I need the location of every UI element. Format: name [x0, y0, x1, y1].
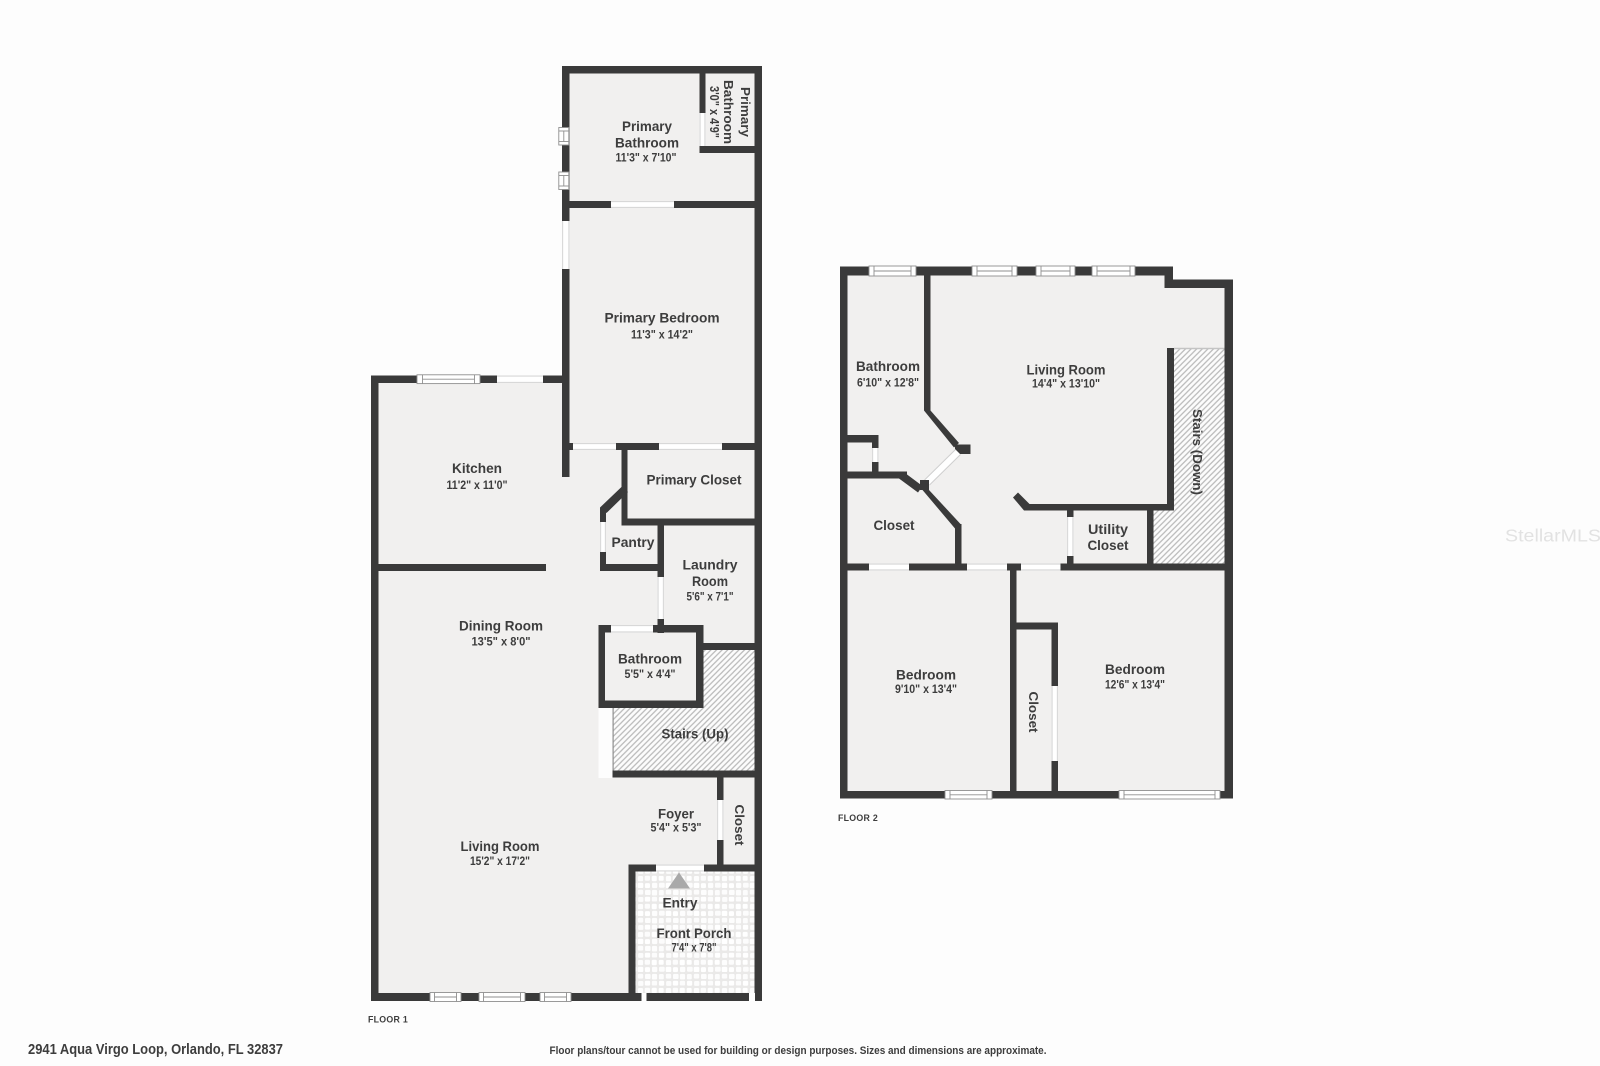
svg-text:Pantry: Pantry — [612, 534, 655, 550]
svg-text:StellarMLS: StellarMLS — [1505, 526, 1600, 546]
svg-text:FLOOR 1: FLOOR 1 — [368, 1015, 408, 1026]
svg-text:Bedroom: Bedroom — [1105, 661, 1165, 677]
svg-text:Front Porch: Front Porch — [657, 925, 732, 941]
svg-text:Closet: Closet — [1026, 692, 1040, 734]
svg-text:Bedroom: Bedroom — [896, 667, 956, 683]
svg-text:Entry: Entry — [663, 895, 698, 911]
svg-text:Closet: Closet — [1088, 537, 1129, 553]
svg-text:15'2" x 17'2": 15'2" x 17'2" — [470, 854, 530, 868]
svg-text:Room: Room — [692, 573, 728, 589]
svg-text:11'3" x 14'2": 11'3" x 14'2" — [631, 328, 693, 342]
svg-text:Primary: Primary — [622, 118, 672, 134]
svg-text:9'10" x 13'4": 9'10" x 13'4" — [895, 682, 957, 696]
svg-text:Stairs (Down): Stairs (Down) — [1190, 409, 1204, 495]
svg-text:13'5" x 8'0": 13'5" x 8'0" — [472, 634, 531, 648]
svg-text:Primary: Primary — [738, 87, 752, 137]
svg-text:Bathroom: Bathroom — [618, 651, 682, 667]
svg-text:3'0" x 4'9": 3'0" x 4'9" — [707, 86, 721, 138]
svg-text:5'4" x 5'3": 5'4" x 5'3" — [651, 820, 702, 834]
svg-text:Kitchen: Kitchen — [452, 460, 502, 476]
svg-text:Closet: Closet — [874, 517, 915, 533]
svg-text:Floor plans/tour cannot be use: Floor plans/tour cannot be used for buil… — [550, 1045, 1047, 1057]
svg-text:Laundry: Laundry — [683, 557, 738, 573]
svg-text:11'3" x 7'10": 11'3" x 7'10" — [616, 151, 677, 165]
svg-text:FLOOR 2: FLOOR 2 — [838, 813, 878, 824]
svg-text:14'4" x 13'10": 14'4" x 13'10" — [1032, 377, 1100, 391]
svg-text:11'2" x 11'0": 11'2" x 11'0" — [447, 478, 508, 492]
svg-text:Bathroom: Bathroom — [856, 358, 920, 374]
svg-text:Closet: Closet — [732, 805, 746, 847]
svg-text:7'4" x 7'8": 7'4" x 7'8" — [672, 941, 717, 955]
svg-text:Living Room: Living Room — [461, 838, 540, 854]
svg-text:6'10" x 12'8": 6'10" x 12'8" — [857, 375, 919, 389]
svg-text:Dining Room: Dining Room — [459, 618, 543, 634]
svg-text:12'6" x 13'4": 12'6" x 13'4" — [1105, 678, 1165, 692]
svg-text:Bathroom: Bathroom — [615, 135, 679, 151]
svg-text:Primary Bedroom: Primary Bedroom — [605, 310, 720, 326]
svg-text:Utility: Utility — [1088, 521, 1128, 537]
svg-text:5'6" x 7'1": 5'6" x 7'1" — [687, 590, 734, 604]
svg-text:Stairs (Up): Stairs (Up) — [662, 726, 729, 742]
svg-text:Bathroom: Bathroom — [721, 80, 735, 144]
svg-text:Living Room: Living Room — [1027, 361, 1106, 377]
svg-text:Primary Closet: Primary Closet — [647, 472, 742, 488]
svg-text:5'5" x 4'4": 5'5" x 4'4" — [625, 667, 676, 681]
svg-text:Foyer: Foyer — [658, 805, 695, 821]
svg-text:2941 Aqua Virgo Loop, Orlando,: 2941 Aqua Virgo Loop, Orlando, FL 32837 — [28, 1042, 283, 1058]
